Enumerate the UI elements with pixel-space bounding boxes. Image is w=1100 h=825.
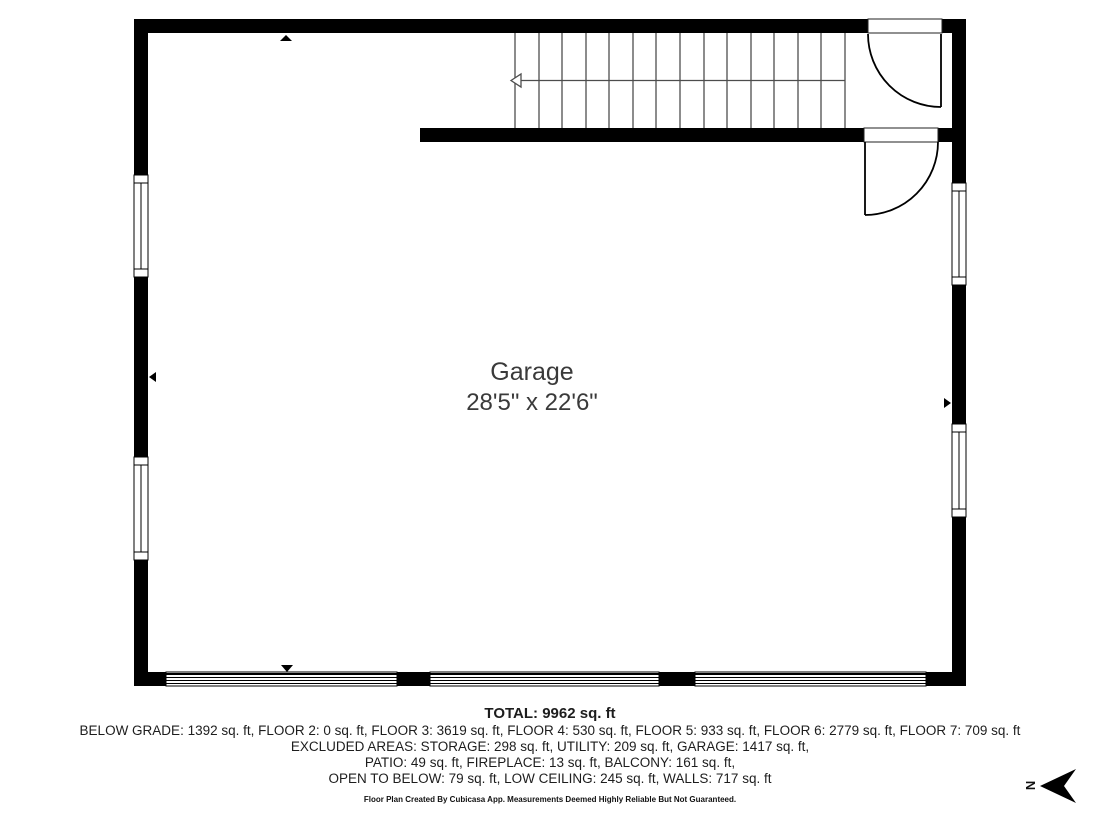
wall-marker-left-icon: [149, 372, 156, 382]
summary-excluded-2: PATIO: 49 sq. ft, FIREPLACE: 13 sq. ft, …: [0, 755, 1100, 771]
door-interior-arc: [865, 142, 938, 215]
wall-bottom-pier-2: [659, 672, 695, 686]
window-right-1: [952, 183, 966, 285]
summary-disclaimer: Floor Plan Created By Cubicasa App. Meas…: [0, 795, 1100, 805]
wall-bottom-corner-left: [134, 672, 166, 686]
wall-right-upper: [952, 19, 966, 183]
staircase: [511, 33, 845, 128]
garage-door-3: [695, 672, 926, 686]
window-left-2: [134, 457, 148, 560]
wall-interior-left: [420, 128, 864, 142]
door-top-frame: [868, 19, 942, 33]
door-top: [868, 19, 942, 107]
window-left-1: [134, 175, 148, 277]
wall-marker-bottom-icon: [281, 665, 293, 672]
wall-bottom-pier-1: [397, 672, 430, 686]
summary-floors: BELOW GRADE: 1392 sq. ft, FLOOR 2: 0 sq.…: [0, 723, 1100, 739]
windows: [134, 175, 966, 560]
summary-excluded-3: OPEN TO BELOW: 79 sq. ft, LOW CEILING: 2…: [0, 771, 1100, 787]
stair-direction-arrow-icon: [511, 74, 521, 87]
wall-marker-top-icon: [280, 35, 292, 41]
summary-excluded-1: EXCLUDED AREAS: STORAGE: 298 sq. ft, UTI…: [0, 739, 1100, 755]
floor-plan-drawing: [0, 0, 1100, 825]
wall-top-left: [134, 19, 868, 33]
wall-interior-right: [938, 128, 952, 142]
door-interior: [864, 128, 938, 215]
door-interior-frame: [864, 128, 938, 142]
exterior-walls: [134, 19, 966, 686]
wall-right-lower: [952, 517, 966, 686]
garage-door-2: [430, 672, 659, 686]
garage-doors: [166, 672, 926, 686]
wall-marker-right-icon: [944, 398, 951, 408]
door-top-arc: [868, 34, 941, 107]
wall-left-upper: [134, 19, 148, 175]
wall-left-lower: [134, 560, 148, 686]
wall-bottom-corner-right: [926, 672, 966, 686]
wall-right-middle: [952, 285, 966, 424]
floor-plan-page: Garage 28'5" x 22'6" N TOTAL: 9962 sq. f…: [0, 0, 1100, 825]
swing-doors: [864, 19, 942, 215]
garage-door-1: [166, 672, 397, 686]
area-summary: TOTAL: 9962 sq. ft BELOW GRADE: 1392 sq.…: [0, 705, 1100, 805]
summary-total: TOTAL: 9962 sq. ft: [0, 705, 1100, 723]
wall-left-middle: [134, 277, 148, 457]
window-right-2: [952, 424, 966, 517]
